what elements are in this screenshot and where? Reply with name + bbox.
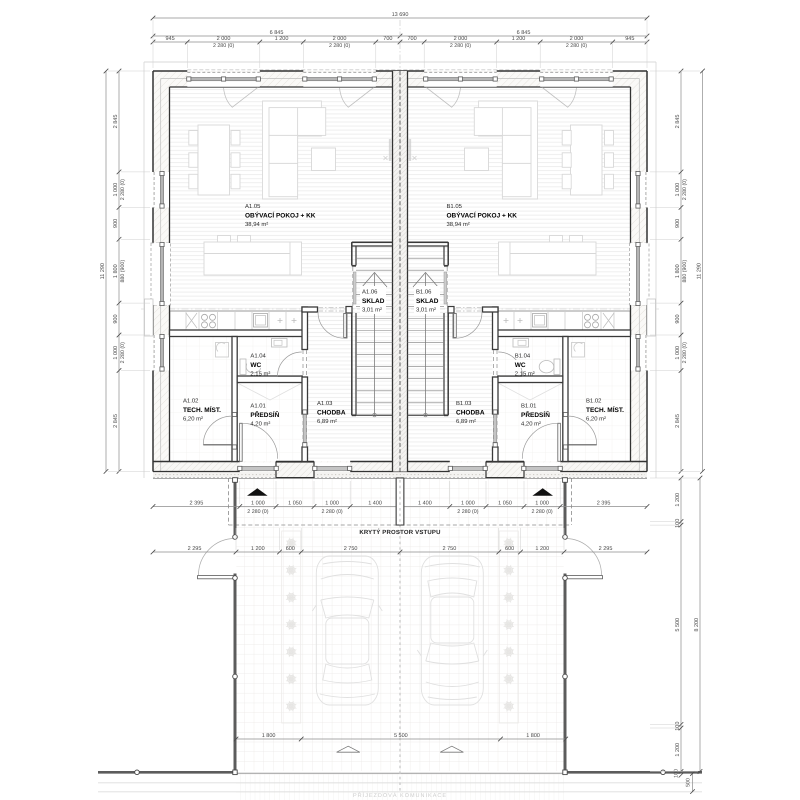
svg-text:1 200: 1 200 [675,743,681,757]
svg-text:A1.02: A1.02 [183,398,198,405]
svg-text:B1.02: B1.02 [586,398,601,405]
svg-text:B1.04: B1.04 [515,353,531,360]
svg-text:100: 100 [674,769,680,778]
svg-text:100: 100 [675,519,681,528]
svg-text:1 200: 1 200 [535,546,549,552]
svg-text:1 050: 1 050 [288,500,302,506]
svg-text:2 000: 2 000 [217,36,231,42]
svg-text:2 845: 2 845 [675,414,681,428]
svg-text:600: 600 [505,546,514,552]
svg-text:2 280 (0): 2 280 (0) [682,179,688,200]
svg-text:4,20 m²: 4,20 m² [521,421,541,428]
svg-text:2 280 (0): 2 280 (0) [120,342,126,363]
svg-text:1 000: 1 000 [113,346,119,360]
svg-text:11 290: 11 290 [696,263,702,279]
svg-text:900: 900 [113,219,119,228]
svg-text:CHODBA: CHODBA [317,409,346,416]
svg-text:1 000: 1 000 [461,500,475,506]
svg-text:2 280 (0): 2 280 (0) [321,509,342,515]
svg-text:500: 500 [686,778,692,787]
svg-text:1 200: 1 200 [675,493,681,507]
svg-text:CHODBA: CHODBA [456,409,485,416]
svg-text:2 000: 2 000 [333,36,347,42]
svg-text:6,89 m²: 6,89 m² [456,418,476,425]
svg-text:1 200: 1 200 [251,546,265,552]
svg-text:2,15 m²: 2,15 m² [515,371,535,378]
svg-text:WC: WC [515,362,526,369]
svg-text:A1.06: A1.06 [362,289,378,296]
svg-text:2,15 m²: 2,15 m² [250,371,270,378]
svg-text:3,01 m²: 3,01 m² [416,307,436,314]
svg-text:A1.05: A1.05 [245,203,261,210]
svg-text:PŘEDSÍŇ: PŘEDSÍŇ [521,411,550,419]
svg-text:2 295: 2 295 [188,546,202,552]
svg-text:A1.03: A1.03 [317,400,333,407]
svg-text:2 280 (0): 2 280 (0) [120,179,126,200]
svg-text:4,20 m²: 4,20 m² [250,421,270,428]
svg-text:2 395: 2 395 [190,500,204,506]
svg-text:2 000: 2 000 [454,36,468,42]
svg-text:KRYTÝ PROSTOR VSTUPU: KRYTÝ PROSTOR VSTUPU [359,528,440,536]
svg-text:1 400: 1 400 [418,500,432,506]
svg-text:1 800: 1 800 [262,733,276,739]
svg-text:1 000: 1 000 [251,500,265,506]
svg-text:A1.04: A1.04 [250,353,266,360]
svg-text:1 800: 1 800 [526,733,540,739]
svg-text:945: 945 [625,36,634,42]
svg-text:2 845: 2 845 [113,115,119,129]
svg-text:B1.01: B1.01 [521,403,536,410]
svg-text:1 000: 1 000 [325,500,339,506]
svg-text:1 000: 1 000 [113,183,119,197]
svg-text:SKLAD: SKLAD [362,298,385,305]
svg-text:2 280 (0): 2 280 (0) [247,509,268,515]
svg-text:13 690: 13 690 [392,12,409,18]
svg-text:5 500: 5 500 [394,733,408,739]
svg-text:900: 900 [675,219,681,228]
svg-text:A1.01: A1.01 [250,403,265,410]
svg-text:2 280 (0): 2 280 (0) [450,43,471,49]
svg-text:2 295: 2 295 [599,546,613,552]
svg-text:TECH. MÍST.: TECH. MÍST. [586,406,624,414]
svg-text:8 200: 8 200 [694,618,700,632]
svg-text:1 050: 1 050 [498,500,512,506]
svg-text:945: 945 [166,36,175,42]
svg-text:2 280 (0): 2 280 (0) [457,509,478,515]
svg-text:B1.06: B1.06 [416,289,432,296]
svg-text:1 800: 1 800 [113,264,119,278]
svg-text:2 280 (0): 2 280 (0) [329,43,350,49]
svg-text:6,20 m²: 6,20 m² [183,416,203,423]
svg-text:1 200: 1 200 [512,36,526,42]
svg-text:6,89 m²: 6,89 m² [317,418,337,425]
svg-text:700: 700 [408,36,417,42]
svg-text:WC: WC [250,362,261,369]
svg-text:11 290: 11 290 [100,263,106,279]
svg-text:2 280 (0): 2 280 (0) [682,342,688,363]
svg-text:SKLAD: SKLAD [416,298,439,305]
svg-text:1 000: 1 000 [535,500,549,506]
svg-text:1 800: 1 800 [675,264,681,278]
svg-text:2 395: 2 395 [597,500,611,506]
svg-text:880 (900): 880 (900) [682,260,688,283]
svg-text:2 280 (0): 2 280 (0) [531,509,552,515]
svg-text:2 280 (0): 2 280 (0) [213,43,234,49]
svg-text:1 000: 1 000 [675,183,681,197]
svg-text:1 400: 1 400 [368,500,382,506]
svg-text:2 000: 2 000 [570,36,584,42]
svg-text:6,20 m²: 6,20 m² [586,416,606,423]
svg-text:1 000: 1 000 [675,346,681,360]
svg-text:2 845: 2 845 [113,414,119,428]
svg-text:100: 100 [675,722,681,731]
svg-text:2 845: 2 845 [675,115,681,129]
svg-text:2 280 (0): 2 280 (0) [566,43,587,49]
svg-text:2 750: 2 750 [344,546,358,552]
svg-text:38,94 m²: 38,94 m² [447,221,470,228]
svg-text:B1.03: B1.03 [456,400,472,407]
svg-text:1 200: 1 200 [275,36,289,42]
svg-text:B1.05: B1.05 [447,203,463,210]
svg-text:OBÝVACÍ POKOJ + KK: OBÝVACÍ POKOJ + KK [245,211,316,219]
svg-text:2 750: 2 750 [443,546,457,552]
svg-text:900: 900 [113,314,119,323]
svg-text:5 500: 5 500 [675,618,681,632]
svg-text:PŘÍJEZDOVÁ KOMUNIKACE: PŘÍJEZDOVÁ KOMUNIKACE [353,792,447,799]
svg-text:PŘEDSÍŇ: PŘEDSÍŇ [250,411,279,419]
svg-text:700: 700 [383,36,392,42]
svg-text:TECH. MÍST.: TECH. MÍST. [183,406,221,414]
svg-text:OBÝVACÍ POKOJ + KK: OBÝVACÍ POKOJ + KK [447,211,518,219]
svg-text:3,01 m²: 3,01 m² [362,307,382,314]
svg-text:900: 900 [675,314,681,323]
svg-text:600: 600 [286,546,295,552]
svg-text:880 (900): 880 (900) [120,260,126,283]
svg-text:38,94 m²: 38,94 m² [245,221,268,228]
